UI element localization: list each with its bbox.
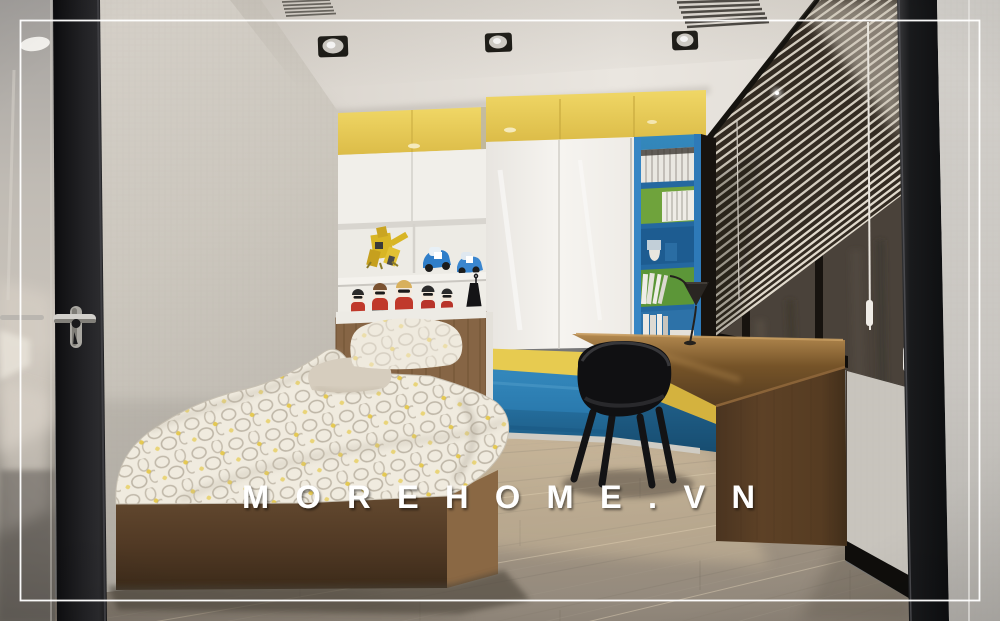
svg-text:MOREHOME.VN: MOREHOME.VN: [242, 479, 776, 515]
